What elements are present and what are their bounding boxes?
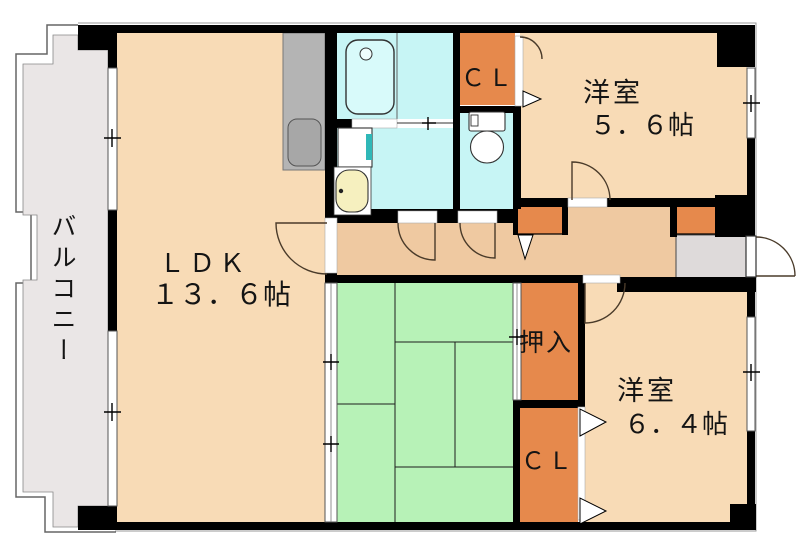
closet-lower-label: ＣＬ [521, 449, 575, 473]
toilet-icon [469, 112, 505, 163]
room-tatami [337, 283, 513, 522]
oshiire-label: 押入 [519, 330, 573, 355]
closet-upper-label: ＣＬ [461, 66, 515, 90]
western-room-2-name-label: 洋室 [617, 378, 677, 405]
balcony-label: バルコニー [50, 213, 75, 368]
western-room-1-name-label: 洋室 [583, 80, 643, 107]
western-room-1-size-label: ５．６帖 [590, 113, 694, 139]
ldk-size-label: １３．６帖 [151, 281, 291, 309]
entrance-genkan [676, 235, 747, 277]
washbasin-icon [334, 167, 371, 215]
hall-cabinet [518, 205, 562, 234]
shoe-cabinet [677, 205, 715, 234]
door-entrance [756, 237, 795, 276]
ldk-name-label: ＬＤＫ [159, 251, 249, 277]
floorplan-drawing [0, 0, 800, 544]
kitchen-counter-icon [283, 33, 325, 170]
bathtub-icon [346, 40, 394, 114]
floorplan: バルコニー ＬＤＫ １３．６帖 洋室 ５．６帖 ＣＬ 押入 ＣＬ 洋室 ６．４帖 [0, 0, 800, 544]
western-room-2-size-label: ６．４帖 [624, 412, 728, 438]
washing-machine-icon [338, 128, 372, 167]
entrance-door-leaf [746, 236, 756, 277]
kitchen-sink-icon [288, 119, 321, 166]
